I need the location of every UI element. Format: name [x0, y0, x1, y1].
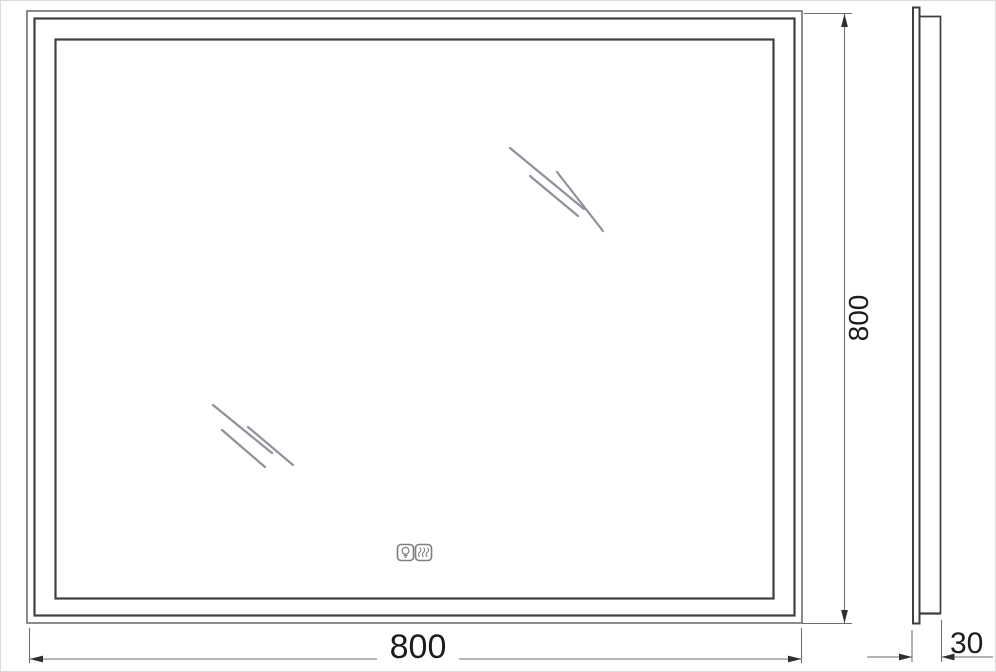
arrowhead-down: [841, 610, 848, 623]
arrowhead-left: [30, 656, 44, 663]
mirror-outer-edge: [27, 11, 802, 623]
width-dimension-label: 800: [377, 630, 459, 664]
glass-shine-upper: [510, 148, 603, 231]
arrowhead-right: [788, 656, 802, 663]
led-strip-border: [56, 40, 774, 599]
front-view: [27, 11, 802, 623]
height-dimension-label: 800: [845, 295, 873, 342]
glass-shine-lower: [213, 405, 293, 467]
arrowhead-up: [841, 14, 848, 27]
mirror-drawing-canvas: 800 800 30: [0, 0, 996, 672]
side-view: [913, 8, 941, 624]
side-view-glass: [913, 8, 920, 624]
mirror-frame-border: [35, 19, 795, 616]
light-bulb-icon: [398, 545, 414, 561]
side-view-frame-profile: [920, 17, 941, 614]
arrowhead-inward-right: [899, 654, 912, 661]
depth-dimension-label: 30: [950, 629, 983, 659]
anti-fog-heater-icon: [416, 545, 432, 561]
